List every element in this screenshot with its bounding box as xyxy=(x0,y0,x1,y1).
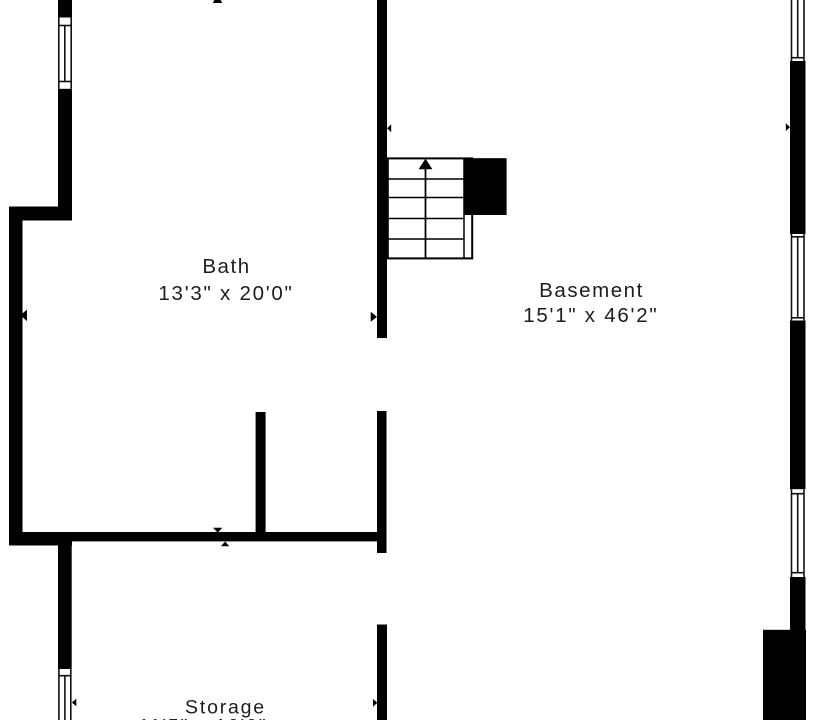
svg-text:11'5" x 10'0": 11'5" x 10'0" xyxy=(139,716,268,720)
svg-text:Basement: Basement xyxy=(539,279,644,302)
svg-text:15'1" x 46'2": 15'1" x 46'2" xyxy=(523,304,658,327)
svg-text:Bath: Bath xyxy=(202,255,250,278)
svg-text:13'3" x 20'0": 13'3" x 20'0" xyxy=(158,282,293,305)
